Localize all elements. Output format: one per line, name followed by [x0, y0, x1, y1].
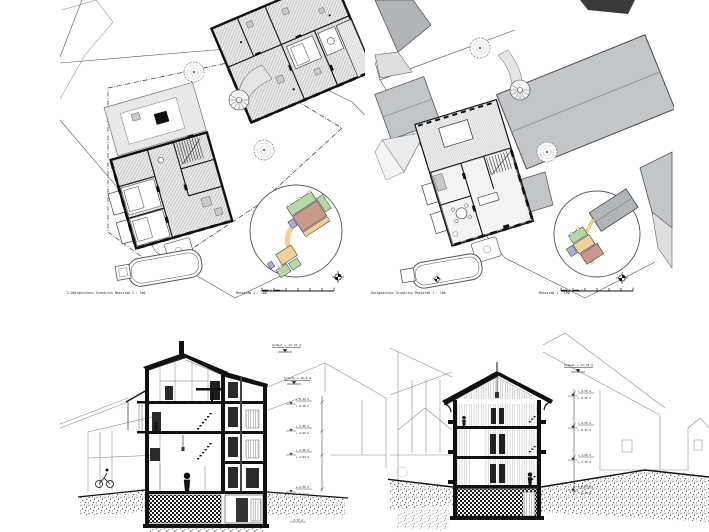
scale-label: Massstab 1 : 100: [539, 291, 570, 295]
spiral-stair-icon: [229, 90, 249, 110]
section-right-panel: Giebel + 13.70 m + 9.50 m + 9.28 m + 6.5…: [385, 333, 709, 530]
svg-text:+ 2.84 m: + 2.84 m: [296, 455, 309, 459]
background-building-right: [543, 333, 709, 470]
svg-text:+ 5.66 m: + 5.66 m: [296, 431, 309, 435]
site-inset: [554, 189, 650, 277]
person-icon: [184, 473, 190, 491]
drawing-sheet: 2.Obergeschoss Grundriss Massstab 1 : 10…: [0, 0, 709, 532]
person-icon: [210, 392, 213, 401]
svg-text:- 0.22 m: - 0.22 m: [296, 492, 309, 496]
pool: [114, 248, 204, 291]
level-label: Traufe + 10.5 m: [284, 376, 311, 380]
pool: [400, 252, 484, 292]
basement: [450, 488, 544, 520]
chimney: [179, 341, 184, 354]
ground-hatch: [385, 470, 709, 530]
svg-text:+ 6.33 m: + 6.33 m: [578, 428, 591, 432]
svg-text:+ 3.06 m: + 3.06 m: [296, 448, 309, 452]
scale-bar-icon: [262, 288, 334, 291]
plan-roof-level-panel: Dachgeschoss Grundriss Massstab 1 : 100 …: [371, 0, 675, 298]
scale-label: Massstab 1 : 100: [236, 291, 267, 295]
person-icon: [462, 416, 466, 426]
level-annotations: Giebel + 13.70 m + 9.50 m + 9.28 m + 6.5…: [564, 363, 594, 495]
svg-text:± 0.00 m: ± 0.00 m: [296, 485, 309, 489]
svg-text:+ 6.55 m: + 6.55 m: [578, 421, 591, 425]
tree-icon: [184, 62, 204, 82]
basement: [143, 493, 269, 528]
scale-bar-icon: [561, 288, 633, 291]
svg-text:± 0.00 m: ± 0.00 m: [578, 484, 591, 488]
svg-text:+ 5.88 m: + 5.88 m: [296, 424, 309, 428]
svg-text:+ 9.50 m: + 9.50 m: [578, 389, 591, 393]
north-icon: [616, 272, 628, 284]
sheet-canvas: 2.Obergeschoss Grundriss Massstab 1 : 10…: [0, 0, 709, 532]
balconies: [126, 390, 147, 434]
section-building: [126, 341, 269, 528]
main-building-plan: [85, 82, 239, 274]
cyclist-icon: [96, 469, 114, 488]
section-building: [442, 362, 553, 520]
person-icon: [528, 472, 532, 485]
interior-walls: [457, 404, 537, 485]
section-left-panel: Giebel + 13.75 m Traufe + 10.5 m + 8.42 …: [60, 341, 386, 532]
spiral-stair-icon: [510, 80, 530, 100]
interior-fittings: [150, 412, 205, 491]
plan-caption: Dachgeschoss Grundriss Massstab 1 : 100: [371, 291, 446, 295]
svg-text:+ 9.28 m: + 9.28 m: [578, 396, 591, 400]
site-inset: [246, 185, 348, 280]
north-icon: [332, 271, 344, 283]
plan-upper-floor-panel: 2.Obergeschoss Grundriss Massstab 1 : 10…: [60, 0, 373, 298]
level-label: Giebel + 13.70 m: [564, 363, 593, 367]
tree-icon: [537, 142, 557, 162]
pendant-lamp: [495, 392, 499, 398]
person-icon: [154, 422, 157, 431]
svg-text:+ 3.60 m: + 3.60 m: [578, 453, 591, 457]
background-building-left: [390, 348, 452, 490]
svg-text:- 2.75 m: - 2.75 m: [290, 518, 303, 522]
tree-icon: [470, 38, 490, 58]
plan-caption: 2.Obergeschoss Grundriss Massstab 1 : 10…: [67, 291, 146, 295]
level-label: Giebel + 13.75 m: [272, 343, 301, 347]
walkway: [498, 50, 522, 84]
svg-text:+ 8.42 m: + 8.42 m: [296, 397, 309, 401]
tree-icon: [254, 140, 274, 160]
svg-text:+ 8.20 m: + 8.20 m: [296, 404, 309, 408]
stair-section: [197, 413, 212, 459]
svg-text:+ 3.38 m: + 3.38 m: [578, 460, 591, 464]
svg-text:- 0.22 m: - 0.22 m: [578, 491, 591, 495]
